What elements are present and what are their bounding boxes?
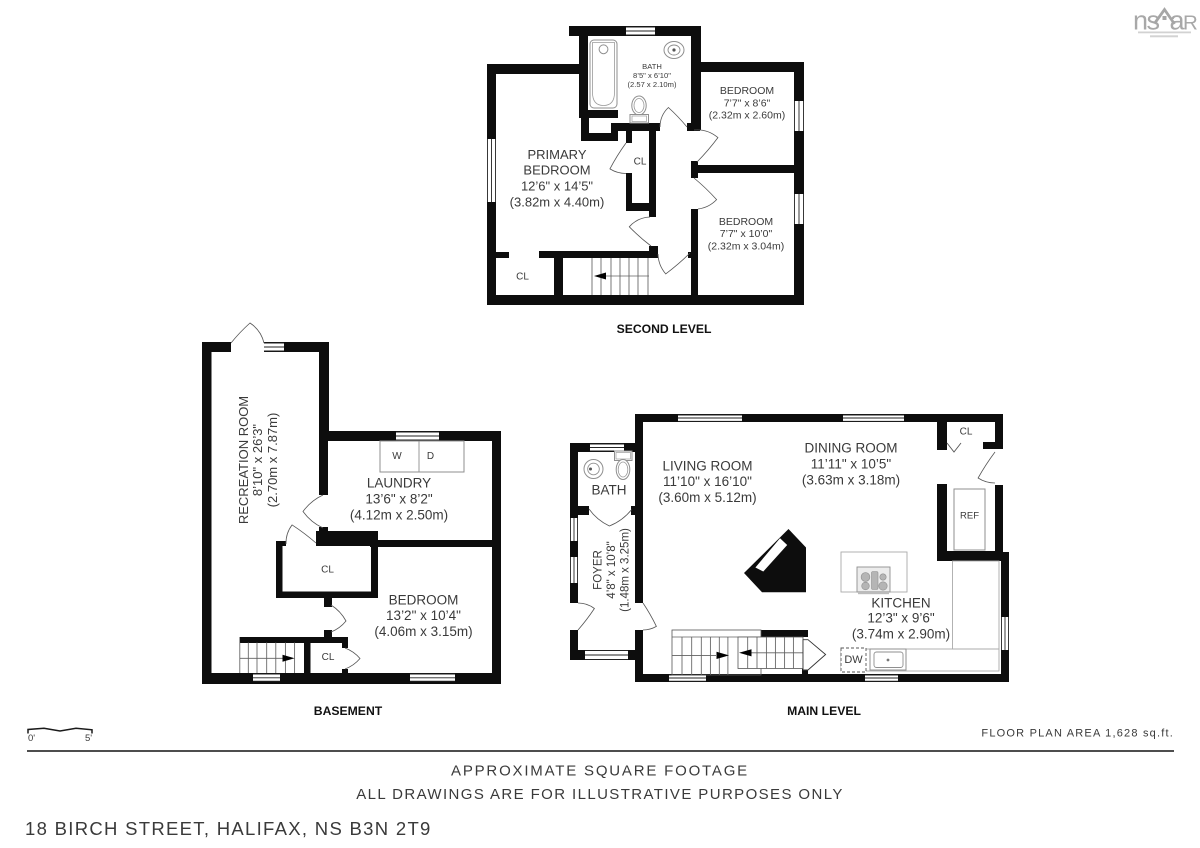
- svg-text:FLOOR PLAN AREA 1,628 sq.ft.: FLOOR PLAN AREA 1,628 sq.ft.: [981, 728, 1174, 740]
- svg-text:11’11" x 10’5": 11’11" x 10’5": [811, 457, 892, 472]
- svg-text:BEDROOM: BEDROOM: [389, 593, 459, 608]
- svg-text:(1.48m x 3.25m): (1.48m x 3.25m): [620, 528, 632, 612]
- svg-text:(2.57 x 2.10m): (2.57 x 2.10m): [628, 80, 677, 89]
- svg-text:11’10" x 16’10": 11’10" x 16’10": [663, 474, 752, 489]
- svg-text:CL: CL: [516, 272, 529, 283]
- svg-text:(2.70m x 7.87m): (2.70m x 7.87m): [265, 413, 280, 508]
- svg-text:8’5" x 6’10": 8’5" x 6’10": [633, 71, 671, 80]
- svg-text:13’2" x 10’4": 13’2" x 10’4": [386, 608, 461, 623]
- svg-text:(3.60m x 5.12m): (3.60m x 5.12m): [658, 490, 756, 505]
- svg-text:7’7" x 10’0": 7’7" x 10’0": [720, 228, 773, 240]
- svg-text:R: R: [1183, 12, 1198, 35]
- svg-text:SECOND LEVEL: SECOND LEVEL: [617, 322, 712, 336]
- svg-text:BEDROOM: BEDROOM: [719, 216, 773, 228]
- svg-text:PRIMARY: PRIMARY: [528, 147, 587, 162]
- svg-text:CL: CL: [321, 565, 334, 576]
- svg-text:DW: DW: [844, 654, 863, 666]
- svg-text:(4.12m x 2.50m): (4.12m x 2.50m): [350, 508, 448, 523]
- svg-text:BASEMENT: BASEMENT: [314, 704, 383, 718]
- svg-text:(2.32m x 2.60m): (2.32m x 2.60m): [709, 109, 785, 121]
- svg-text:LIVING ROOM: LIVING ROOM: [662, 459, 752, 474]
- svg-text:BEDROOM: BEDROOM: [720, 85, 774, 97]
- svg-text:12’3" x 9’6": 12’3" x 9’6": [867, 611, 935, 626]
- svg-text:ALL DRAWINGS ARE FOR ILLUSTRAT: ALL DRAWINGS ARE FOR ILLUSTRATIVE PURPOS…: [356, 786, 844, 803]
- svg-text:D: D: [427, 451, 434, 462]
- svg-text:FOYER: FOYER: [593, 550, 605, 590]
- svg-text:(2.32m x 3.04m): (2.32m x 3.04m): [708, 241, 784, 253]
- svg-text:DINING ROOM: DINING ROOM: [805, 441, 898, 456]
- svg-text:REF: REF: [960, 511, 979, 522]
- svg-text:CL: CL: [322, 652, 335, 663]
- svg-text:8’10" x 26’3": 8’10" x 26’3": [250, 424, 265, 496]
- svg-text:(3.63m x 3.18m): (3.63m x 3.18m): [802, 473, 900, 488]
- svg-text:5': 5': [85, 733, 92, 744]
- svg-text:4’8" x 10’8": 4’8" x 10’8": [606, 541, 618, 598]
- svg-text:CL: CL: [634, 157, 647, 168]
- svg-text:APPROXIMATE SQUARE FOOTAGE: APPROXIMATE SQUARE FOOTAGE: [451, 763, 749, 780]
- svg-text:0': 0': [28, 733, 35, 744]
- svg-text:RECREATION ROOM: RECREATION ROOM: [236, 396, 251, 524]
- svg-text:BATH: BATH: [642, 62, 662, 71]
- svg-text:KITCHEN: KITCHEN: [871, 596, 930, 611]
- svg-text:13’6" x 8’2": 13’6" x 8’2": [365, 492, 433, 507]
- svg-text:(3.74m x 2.90m): (3.74m x 2.90m): [852, 627, 950, 642]
- svg-text:18 BIRCH STREET, HALIFAX, NS B: 18 BIRCH STREET, HALIFAX, NS B3N 2T9: [25, 818, 432, 839]
- svg-text:(4.06m x 3.15m): (4.06m x 3.15m): [374, 624, 472, 639]
- svg-text:(3.82m x 4.40m): (3.82m x 4.40m): [510, 195, 605, 210]
- svg-text:BEDROOM: BEDROOM: [523, 163, 590, 178]
- svg-text:W: W: [392, 451, 402, 462]
- svg-text:BATH: BATH: [591, 483, 626, 498]
- svg-text:CL: CL: [960, 427, 973, 438]
- svg-text:12’6" x 14’5": 12’6" x 14’5": [521, 179, 593, 194]
- svg-text:7’7" x 8’6": 7’7" x 8’6": [724, 97, 771, 109]
- svg-text:MAIN LEVEL: MAIN LEVEL: [787, 704, 861, 718]
- svg-text:LAUNDRY: LAUNDRY: [367, 476, 431, 491]
